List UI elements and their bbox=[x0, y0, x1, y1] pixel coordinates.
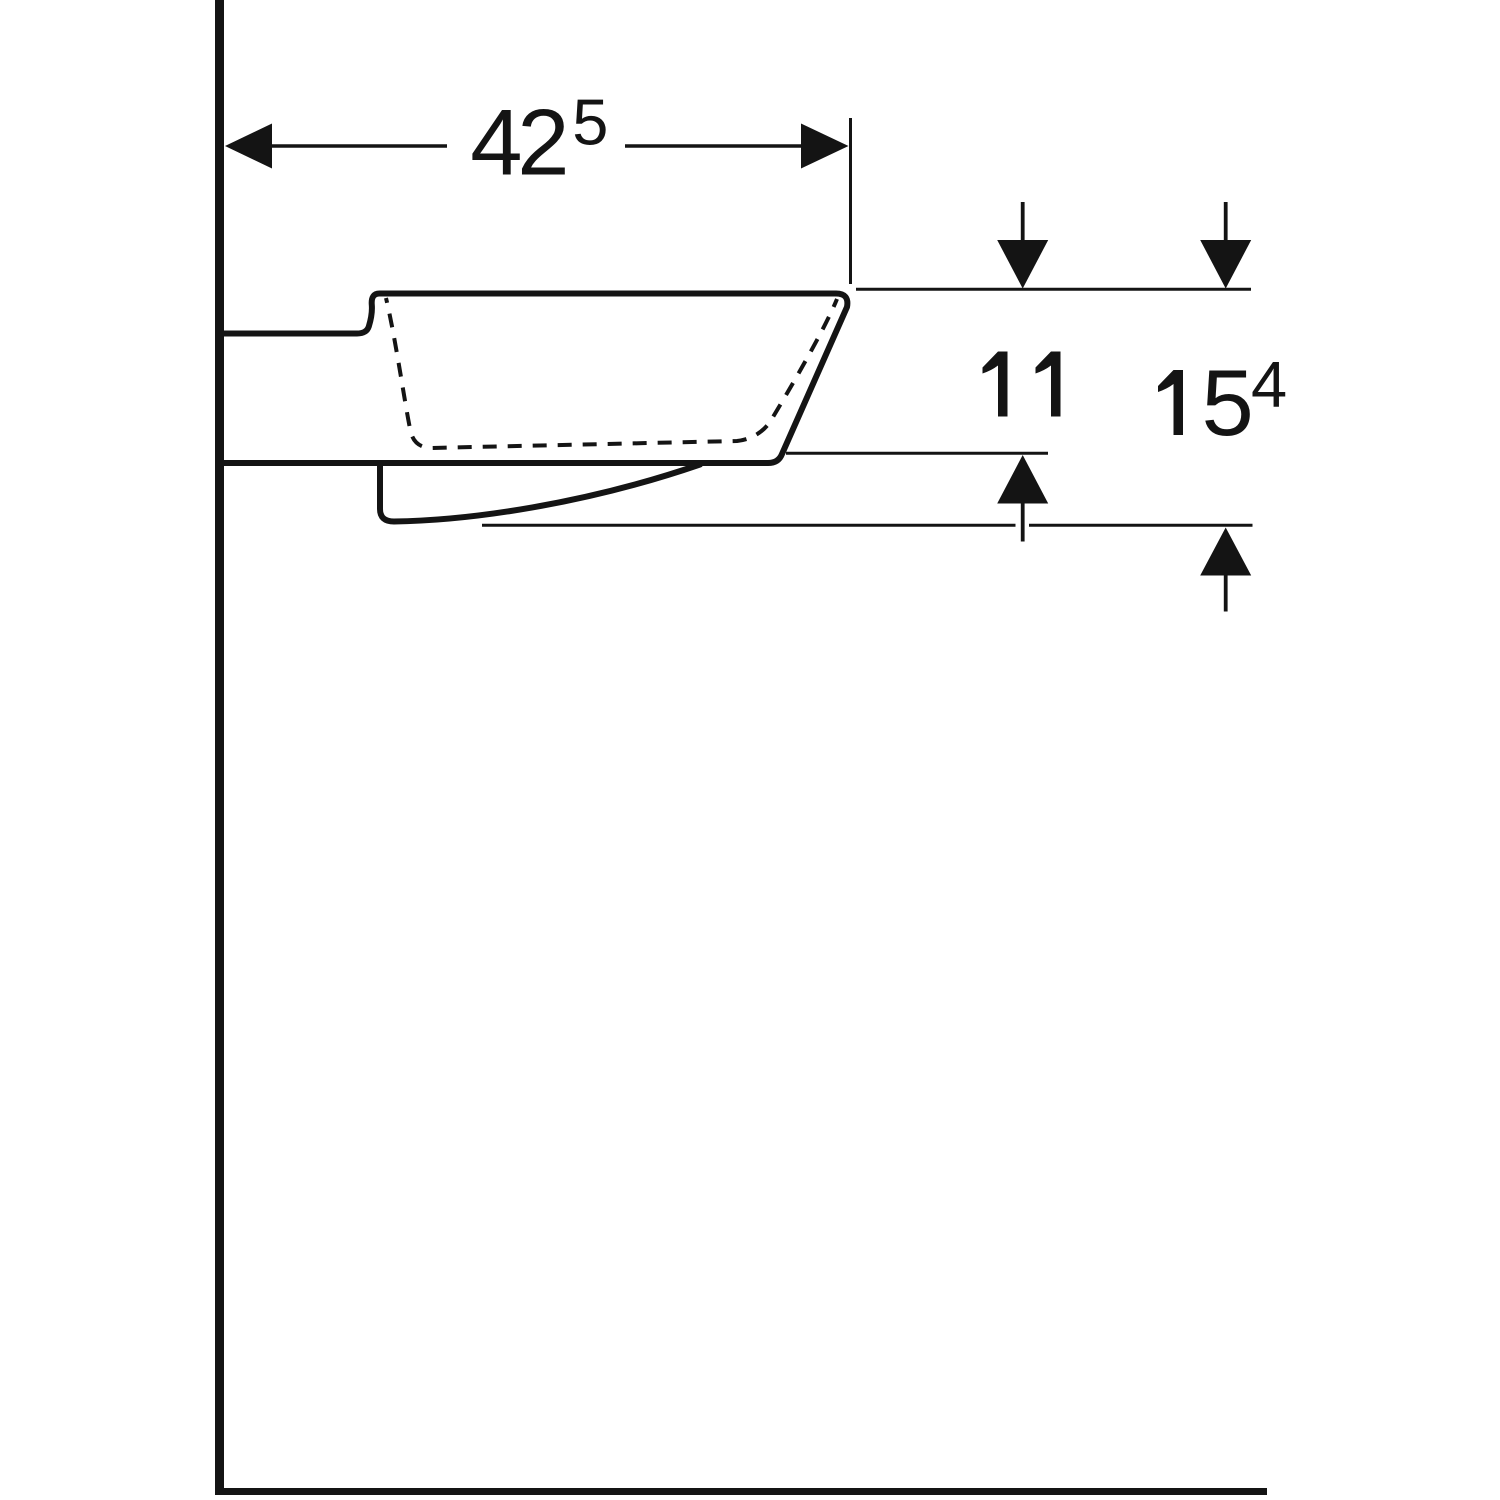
svg-text:2: 2 bbox=[517, 90, 569, 195]
svg-text:4: 4 bbox=[470, 90, 522, 195]
svg-text:4: 4 bbox=[1251, 348, 1287, 421]
svg-text:5: 5 bbox=[572, 86, 608, 159]
svg-text:5: 5 bbox=[1202, 350, 1254, 455]
